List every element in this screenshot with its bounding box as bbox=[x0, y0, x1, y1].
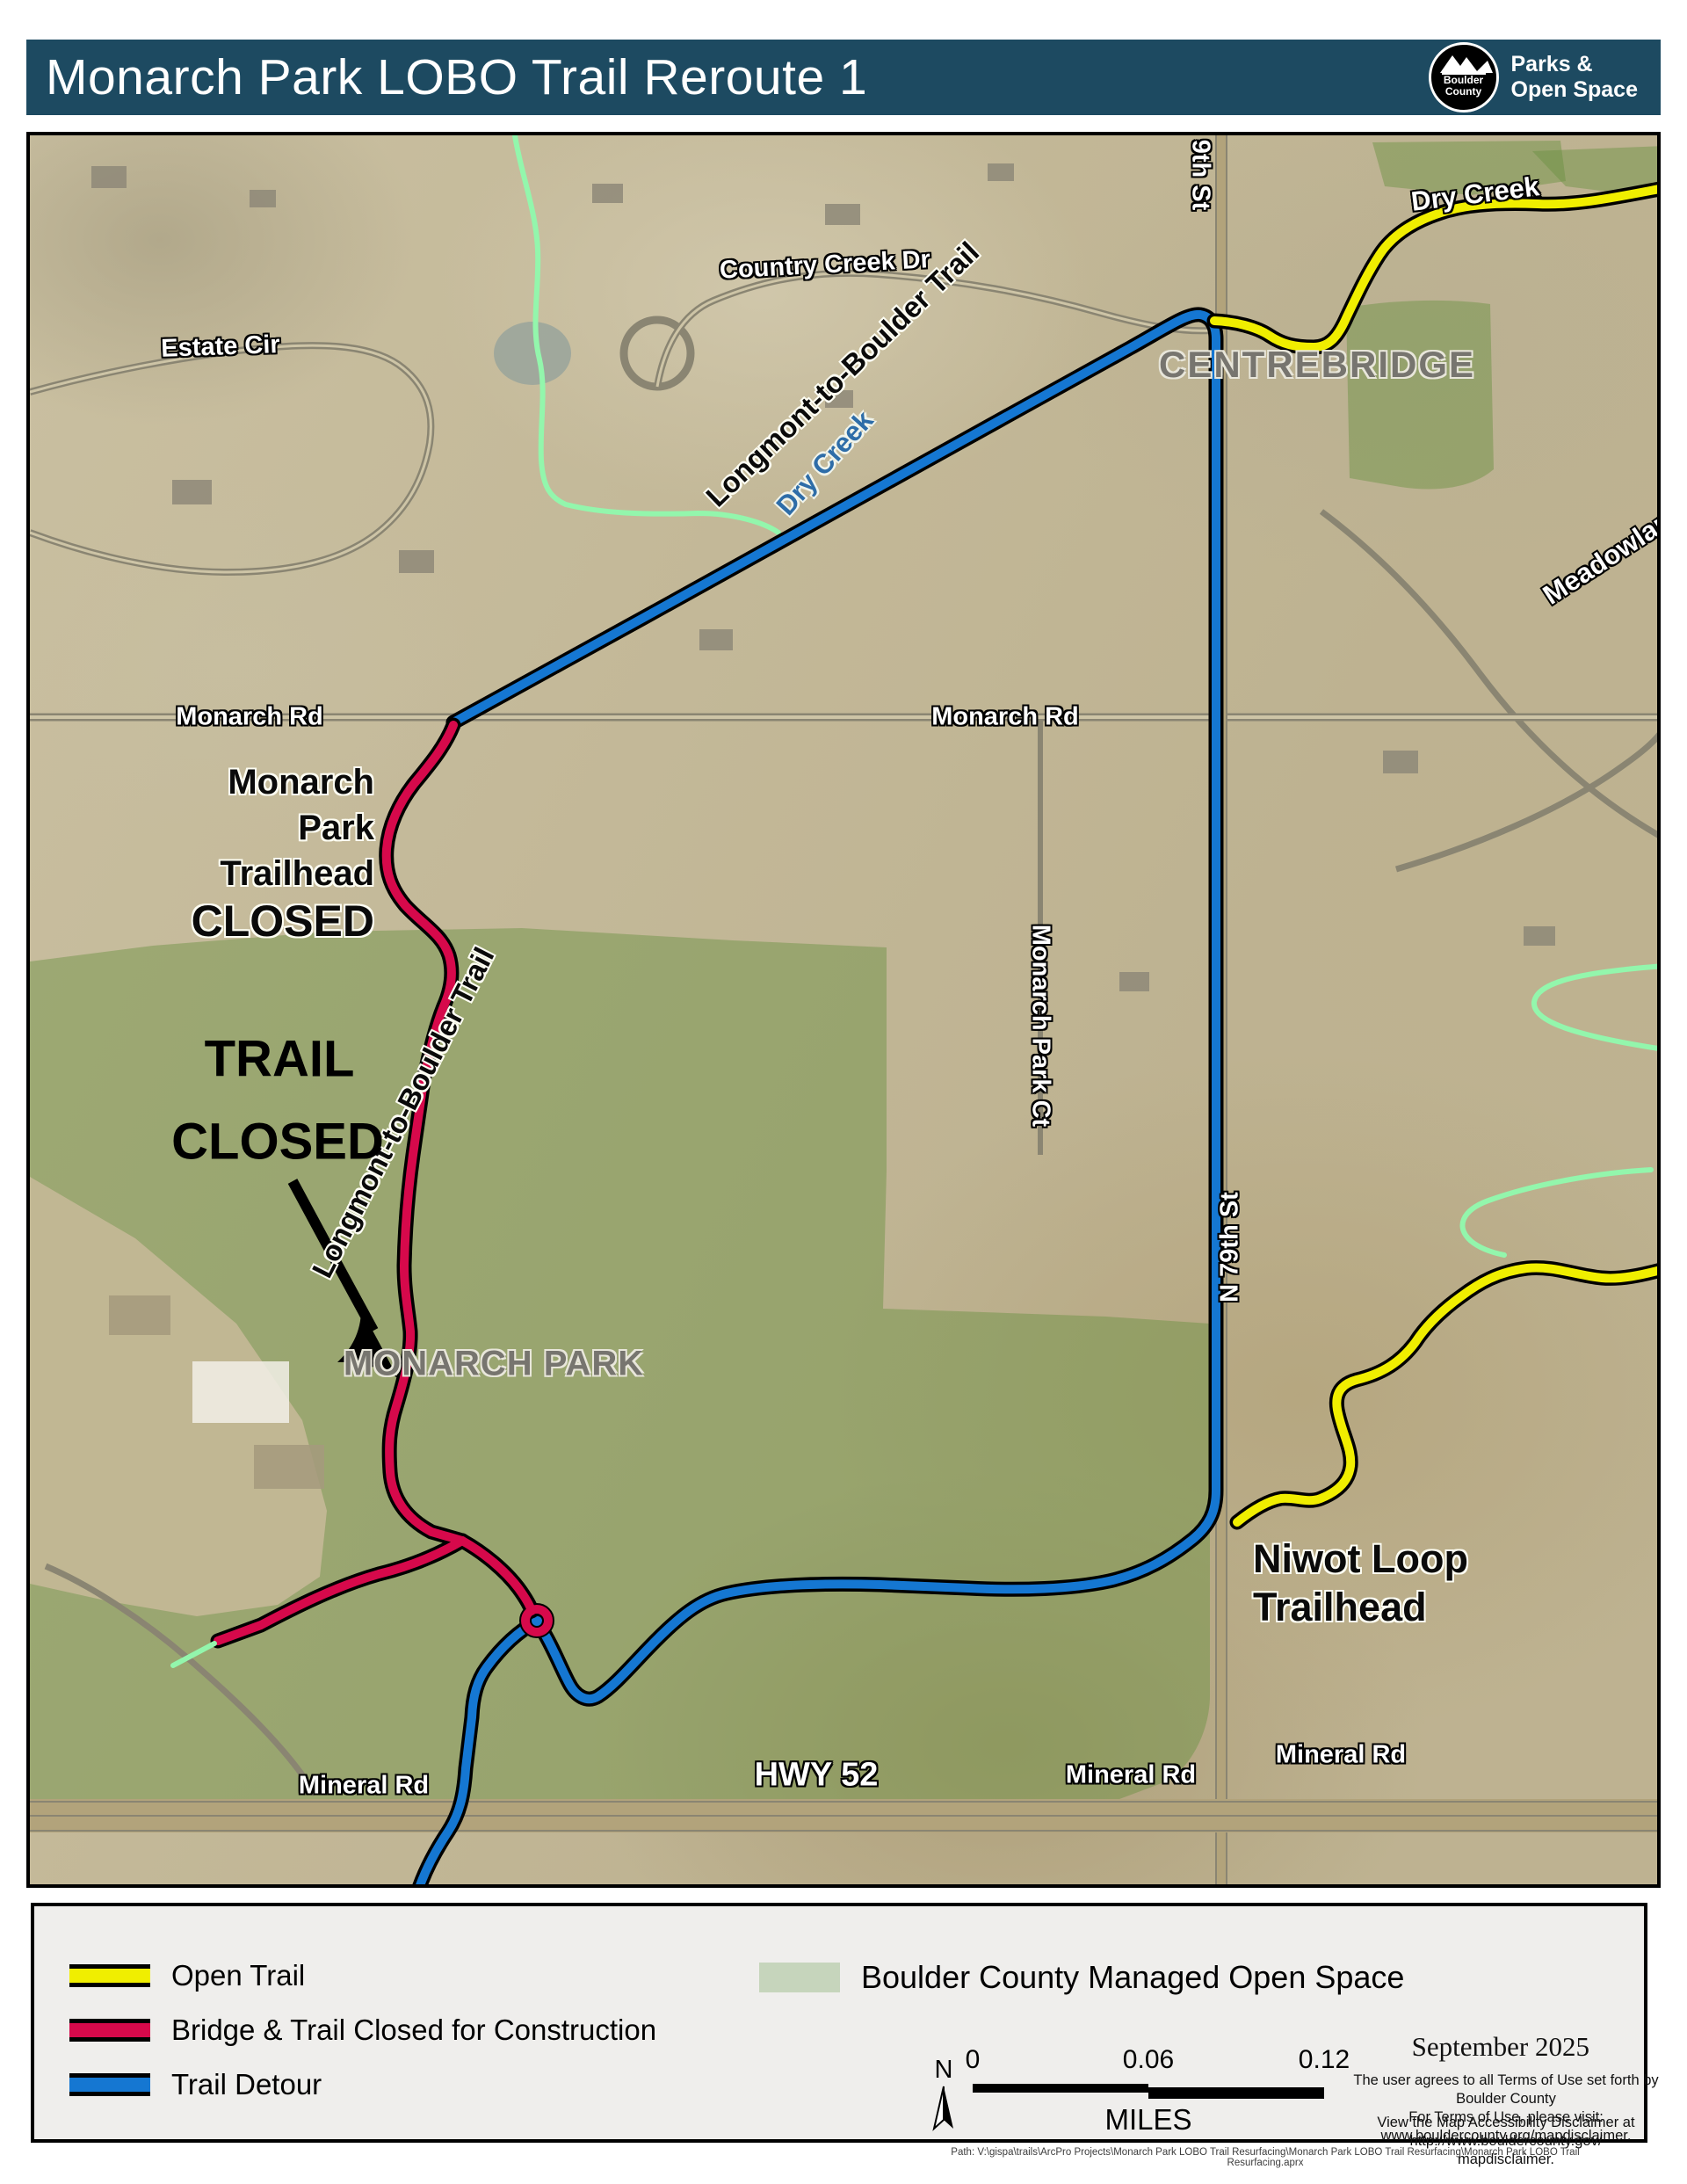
label-monarch-park-ct: Monarch Park Ct bbox=[1026, 925, 1055, 1127]
north-arrow: N bbox=[926, 2056, 961, 2138]
open-space-swatch bbox=[759, 1963, 840, 1992]
header-bar: Monarch Park LOBO Trail Reroute 1 Boulde… bbox=[26, 40, 1661, 115]
label-monarch-rd-left: Monarch Rd bbox=[176, 703, 323, 732]
label-mineral-rd-left: Mineral Rd bbox=[299, 1772, 429, 1801]
label-monarch-park: MONARCH PARK bbox=[344, 1345, 644, 1384]
building bbox=[254, 1445, 324, 1489]
building bbox=[1383, 751, 1418, 773]
scale-bar: 0 0.06 0.12 MILES bbox=[973, 2045, 1324, 2142]
agency-name: Parks & Open Space bbox=[1511, 52, 1639, 103]
legend: Open Trail Bridge & Trail Closed for Con… bbox=[31, 1903, 1647, 2143]
label-estate-cir: Estate Cir bbox=[161, 330, 280, 364]
creek-line-ne-2 bbox=[1462, 1170, 1651, 1255]
trail-detour-swatch bbox=[69, 2073, 150, 2096]
label-monarch-park-trailhead: Monarch Park Trailhead CLOSED bbox=[153, 759, 374, 946]
label-trail-closed-2: CLOSED bbox=[171, 1113, 384, 1172]
building bbox=[1524, 926, 1555, 946]
road-meadowlark bbox=[1396, 726, 1661, 869]
label-trail-closed-1: TRAIL bbox=[205, 1030, 355, 1089]
building bbox=[592, 184, 623, 203]
boulder-county-logo-icon: Boulder County bbox=[1429, 42, 1499, 112]
label-hwy52: HWY 52 bbox=[755, 1757, 879, 1795]
map-canvas: Estate Cir Country Creek Dr Dry Creek Lo… bbox=[26, 132, 1661, 1888]
brand: Boulder County Parks & Open Space bbox=[1429, 42, 1639, 112]
map-date: September 2025 bbox=[1412, 2031, 1589, 2063]
page-title: Monarch Park LOBO Trail Reroute 1 bbox=[46, 48, 867, 106]
legend-item-closed-trail: Bridge & Trail Closed for Construction bbox=[69, 2013, 656, 2047]
building bbox=[699, 629, 733, 650]
open-space-polygon bbox=[1346, 301, 1494, 490]
building bbox=[172, 480, 212, 504]
logo-text-2: County bbox=[1431, 86, 1496, 98]
scale-units: MILES bbox=[1104, 2103, 1191, 2137]
label-mineral-rd-right: Mineral Rd bbox=[1276, 1741, 1406, 1770]
closed-trail-swatch bbox=[69, 2019, 150, 2042]
north-arrow-icon bbox=[930, 2085, 957, 2134]
legend-item-trail-detour: Trail Detour bbox=[69, 2068, 322, 2101]
scale-bar-segment-1 bbox=[973, 2084, 1148, 2093]
building bbox=[109, 1295, 170, 1335]
building bbox=[91, 166, 127, 188]
scale-bar-segment-2 bbox=[1148, 2087, 1324, 2099]
legend-item-open-space: Boulder County Managed Open Space bbox=[759, 1959, 1404, 1996]
open-trail-swatch bbox=[69, 1964, 150, 1987]
pond bbox=[494, 322, 571, 385]
label-mineral-rd-mid: Mineral Rd bbox=[1066, 1761, 1196, 1790]
file-path: Path: V:\gispa\trails\ArcPro Projects\Mo… bbox=[931, 2147, 1599, 2168]
building bbox=[192, 1361, 289, 1423]
building bbox=[250, 190, 276, 207]
legend-item-open-trail: Open Trail bbox=[69, 1959, 305, 1992]
label-centrebridge: CENTREBRIDGE bbox=[1159, 344, 1475, 386]
building bbox=[399, 550, 434, 573]
building bbox=[825, 204, 860, 225]
label-n79th-st-top: 9th St bbox=[1186, 140, 1215, 211]
creek-line-ne-1 bbox=[1534, 966, 1661, 1049]
trail-open-niwot-path bbox=[1237, 1267, 1661, 1522]
label-monarch-rd-right: Monarch Rd bbox=[931, 703, 1079, 732]
building bbox=[988, 163, 1014, 181]
building bbox=[1119, 972, 1149, 991]
label-niwot-loop-trailhead: Niwot Loop Trailhead bbox=[1253, 1535, 1468, 1631]
label-n79th-st: N 79th St bbox=[1216, 1192, 1245, 1302]
